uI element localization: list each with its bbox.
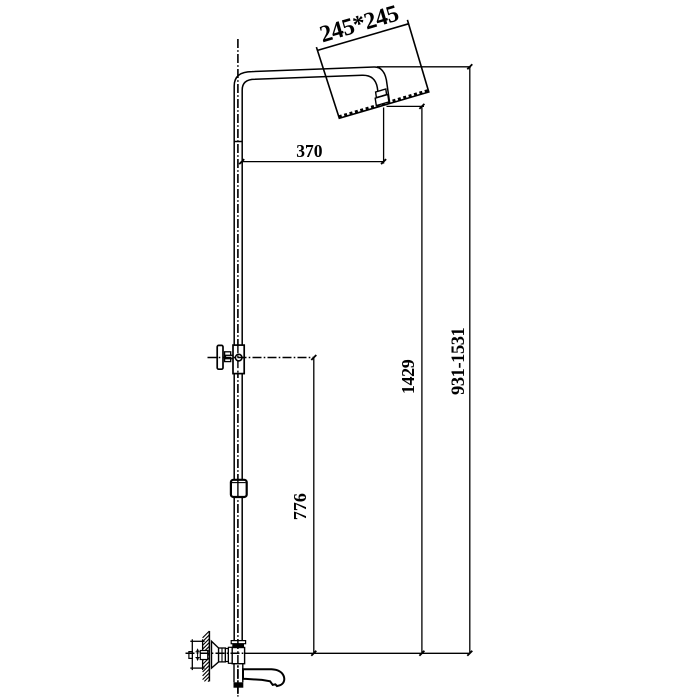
svg-text:931-1531: 931-1531 xyxy=(449,327,469,395)
svg-text:776: 776 xyxy=(290,493,310,520)
svg-text:1429: 1429 xyxy=(398,359,418,394)
svg-text:370: 370 xyxy=(296,141,323,161)
